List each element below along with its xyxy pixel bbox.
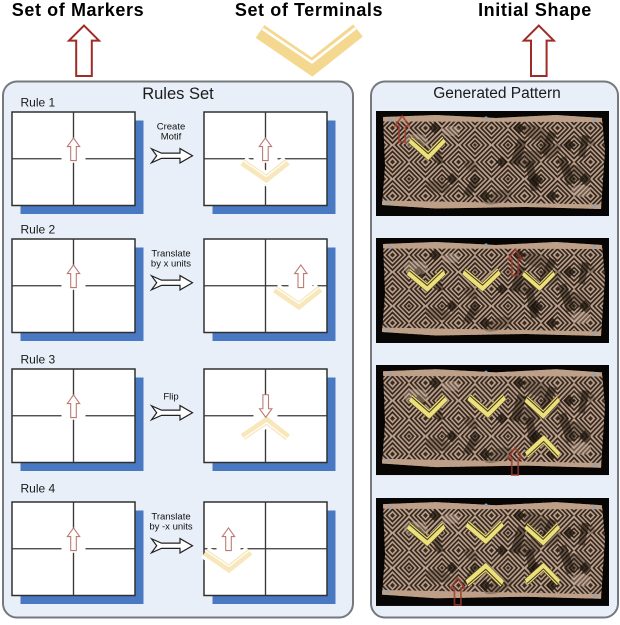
- svg-text:Rule 3: Rule 3: [21, 353, 56, 367]
- svg-text:Flip: Flip: [163, 392, 178, 403]
- svg-text:by -x units: by -x units: [149, 522, 193, 533]
- svg-text:Set of Terminals: Set of Terminals: [235, 0, 383, 20]
- svg-text:Generated Pattern: Generated Pattern: [433, 85, 561, 102]
- svg-text:Initial Shape: Initial Shape: [478, 0, 592, 20]
- svg-text:by x units: by x units: [151, 259, 191, 270]
- svg-text:Rule 1: Rule 1: [21, 96, 56, 110]
- svg-text:Rule 2: Rule 2: [21, 223, 56, 237]
- svg-text:Rule 4: Rule 4: [21, 482, 56, 496]
- svg-text:Motif: Motif: [161, 132, 182, 143]
- svg-text:Set of Markers: Set of Markers: [12, 0, 144, 20]
- svg-text:Rules Set: Rules Set: [142, 85, 214, 103]
